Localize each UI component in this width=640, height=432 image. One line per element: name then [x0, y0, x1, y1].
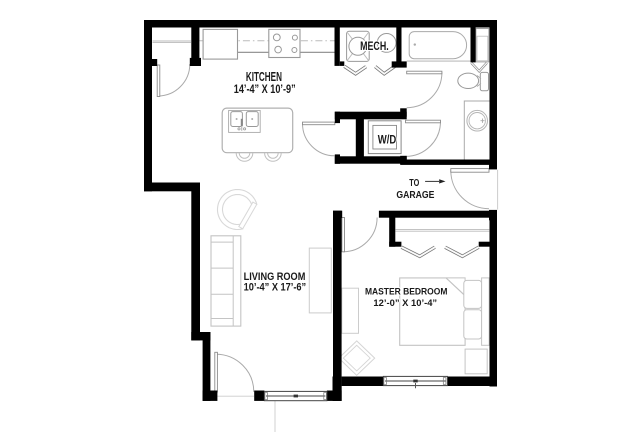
svg-text:14’-4” X 10’-9”: 14’-4” X 10’-9”: [234, 82, 296, 96]
svg-text:MECH.: MECH.: [360, 40, 389, 53]
svg-text:10’-4” X 17’-6”: 10’-4” X 17’-6”: [244, 282, 307, 294]
svg-text:TO: TO: [409, 178, 419, 189]
svg-text:12’-0” X 10’-4”: 12’-0” X 10’-4”: [373, 298, 437, 308]
svg-text:MASTER BEDROOM: MASTER BEDROOM: [365, 287, 448, 297]
svg-text:W/D: W/D: [378, 133, 397, 147]
svg-text:GARAGE: GARAGE: [396, 190, 434, 201]
